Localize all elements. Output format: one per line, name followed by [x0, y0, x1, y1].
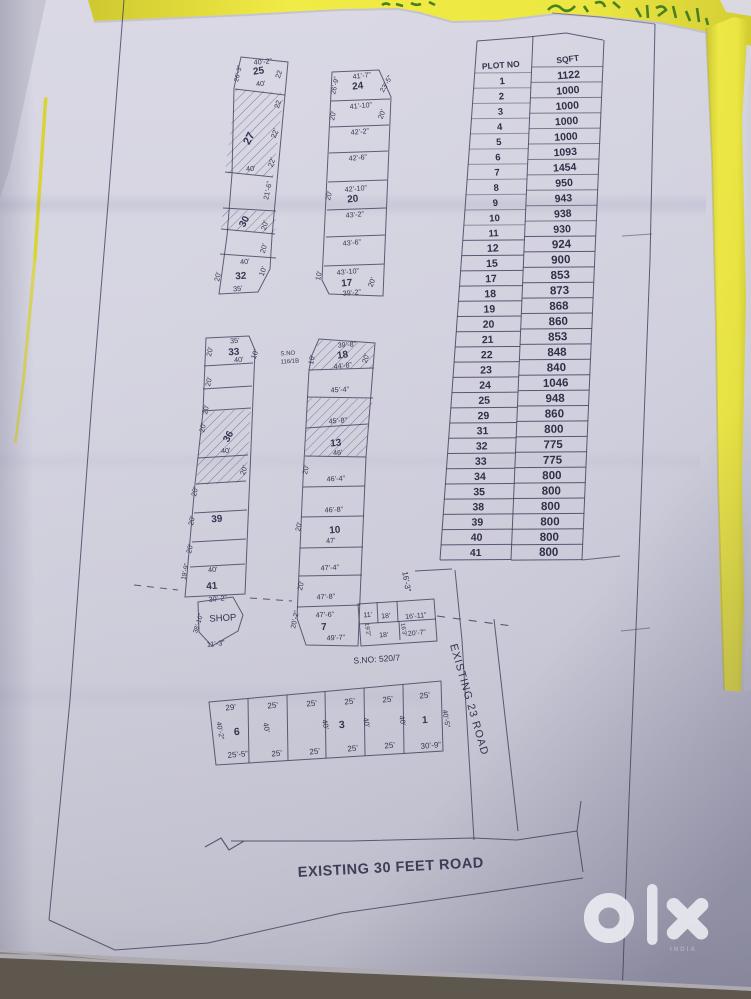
svg-text:848: 848 [547, 346, 567, 359]
svg-text:35: 35 [473, 486, 485, 498]
svg-text:45’-4”: 45’-4” [330, 384, 349, 394]
svg-text:32: 32 [476, 440, 488, 452]
svg-text:40’: 40’ [246, 164, 257, 174]
svg-text:40’: 40’ [234, 355, 245, 365]
svg-text:39’-8”: 39’-8” [337, 339, 357, 349]
svg-text:47’-4”: 47’-4” [320, 562, 339, 572]
svg-text:924: 924 [552, 238, 572, 251]
svg-text:41: 41 [206, 581, 218, 593]
svg-text:33: 33 [475, 456, 487, 468]
svg-text:840: 840 [547, 362, 567, 375]
svg-text:31: 31 [477, 425, 489, 437]
svg-text:15: 15 [486, 258, 498, 271]
svg-text:17: 17 [485, 273, 497, 286]
svg-text:873: 873 [550, 285, 570, 298]
svg-text:18’: 18’ [381, 613, 391, 621]
svg-text:853: 853 [550, 269, 570, 282]
svg-text:1000: 1000 [554, 130, 578, 144]
svg-text:800: 800 [542, 470, 561, 482]
svg-text:29’: 29’ [225, 703, 237, 713]
svg-text:25’: 25’ [382, 695, 394, 705]
svg-text:800: 800 [540, 532, 559, 544]
svg-text:30’-9”: 30’-9” [420, 740, 441, 751]
svg-text:40’: 40’ [256, 79, 267, 89]
svg-text:853: 853 [548, 331, 568, 344]
svg-text:42’-2”: 42’-2” [350, 126, 370, 137]
svg-text:29: 29 [477, 410, 489, 422]
svg-text:25: 25 [478, 395, 490, 407]
svg-text:860: 860 [545, 408, 564, 420]
svg-text:25’: 25’ [309, 747, 321, 757]
svg-text:8: 8 [493, 183, 499, 194]
svg-text:12: 12 [487, 242, 499, 255]
svg-text:900: 900 [551, 254, 571, 267]
svg-text:21: 21 [482, 334, 494, 346]
svg-text:35’: 35’ [233, 284, 244, 294]
svg-text:1000: 1000 [555, 99, 579, 113]
svg-text:25’: 25’ [347, 744, 359, 754]
svg-text:38: 38 [472, 501, 484, 513]
svg-text:39: 39 [472, 517, 484, 529]
svg-text:1454: 1454 [553, 161, 577, 174]
svg-text:25: 25 [252, 65, 265, 78]
svg-text:11’-3”: 11’-3” [206, 638, 225, 649]
svg-text:18’: 18’ [379, 632, 389, 640]
svg-text:800: 800 [541, 501, 560, 513]
svg-text:19: 19 [483, 303, 495, 315]
svg-text:43’-6”: 43’-6” [342, 237, 362, 248]
svg-text:S.NO: S.NO [280, 350, 295, 357]
svg-text:40’: 40’ [221, 446, 232, 456]
svg-text:40’: 40’ [261, 722, 272, 734]
svg-text:32: 32 [235, 271, 247, 283]
svg-text:3: 3 [338, 719, 345, 731]
svg-text:11’: 11’ [363, 612, 373, 620]
svg-text:775: 775 [543, 439, 563, 451]
svg-text:25’: 25’ [384, 741, 396, 751]
svg-text:948: 948 [545, 393, 565, 406]
svg-text:40’: 40’ [240, 257, 251, 267]
svg-text:775: 775 [543, 455, 563, 467]
svg-text:9: 9 [492, 198, 498, 209]
svg-text:SHOP: SHOP [209, 612, 236, 624]
svg-text:6: 6 [495, 152, 501, 163]
svg-text:800: 800 [539, 547, 558, 559]
svg-text:950: 950 [555, 177, 573, 190]
svg-text:34: 34 [474, 471, 486, 483]
svg-text:1000: 1000 [556, 84, 580, 98]
svg-text:868: 868 [549, 300, 569, 313]
svg-text:42’-6”: 42’-6” [348, 152, 368, 163]
svg-text:18: 18 [484, 288, 496, 301]
svg-text:24: 24 [352, 80, 365, 92]
svg-text:7: 7 [494, 167, 500, 178]
svg-text:46’-8”: 46’-8” [324, 504, 343, 514]
svg-text:40’: 40’ [208, 565, 219, 575]
svg-text:25’: 25’ [271, 749, 283, 759]
svg-text:1000: 1000 [555, 115, 579, 129]
svg-text:800: 800 [542, 485, 561, 497]
svg-text:39’-2”: 39’-2” [342, 287, 362, 298]
svg-text:1093: 1093 [553, 146, 577, 160]
svg-text:49’-7”: 49’-7” [326, 632, 345, 642]
svg-text:1046: 1046 [543, 377, 569, 390]
svg-text:943: 943 [554, 192, 572, 205]
svg-text:3: 3 [497, 107, 503, 118]
svg-text:40’: 40’ [361, 717, 372, 729]
svg-text:40’: 40’ [397, 715, 408, 727]
svg-text:1122: 1122 [557, 69, 581, 83]
svg-text:930: 930 [553, 223, 571, 236]
svg-text:43’-2”: 43’-2” [345, 209, 365, 220]
svg-text:20: 20 [483, 318, 495, 330]
svg-text:INDIA: INDIA [670, 946, 697, 953]
svg-text:39: 39 [211, 514, 223, 526]
svg-text:23: 23 [480, 364, 492, 376]
svg-text:47’-8”: 47’-8” [316, 591, 335, 601]
svg-text:10: 10 [489, 213, 500, 225]
svg-text:47’: 47’ [326, 536, 337, 546]
svg-text:800: 800 [540, 516, 559, 528]
svg-text:24: 24 [479, 379, 491, 391]
svg-text:25’: 25’ [306, 699, 318, 709]
svg-text:25’: 25’ [344, 697, 356, 707]
svg-text:47’-6”: 47’-6” [315, 609, 334, 619]
svg-text:11: 11 [488, 228, 499, 240]
svg-text:41: 41 [470, 547, 482, 559]
svg-text:800: 800 [544, 424, 563, 436]
svg-text:860: 860 [548, 316, 568, 329]
svg-text:25’: 25’ [267, 701, 279, 711]
svg-text:35’: 35’ [230, 336, 241, 346]
svg-text:2: 2 [498, 91, 504, 102]
svg-text:22: 22 [481, 349, 493, 361]
svg-text:938: 938 [554, 208, 572, 221]
svg-text:25’: 25’ [419, 691, 431, 701]
svg-text:6: 6 [233, 726, 240, 738]
svg-text:25’-5”: 25’-5” [227, 749, 248, 760]
svg-text:46’: 46’ [333, 448, 344, 458]
svg-text:40’: 40’ [320, 719, 331, 731]
svg-text:20: 20 [347, 194, 359, 206]
svg-text:46’-4”: 46’-4” [326, 473, 345, 483]
svg-text:40: 40 [471, 532, 483, 544]
svg-text:10: 10 [329, 525, 341, 537]
svg-text:45’-8”: 45’-8” [328, 415, 348, 425]
svg-text:7: 7 [321, 622, 328, 633]
